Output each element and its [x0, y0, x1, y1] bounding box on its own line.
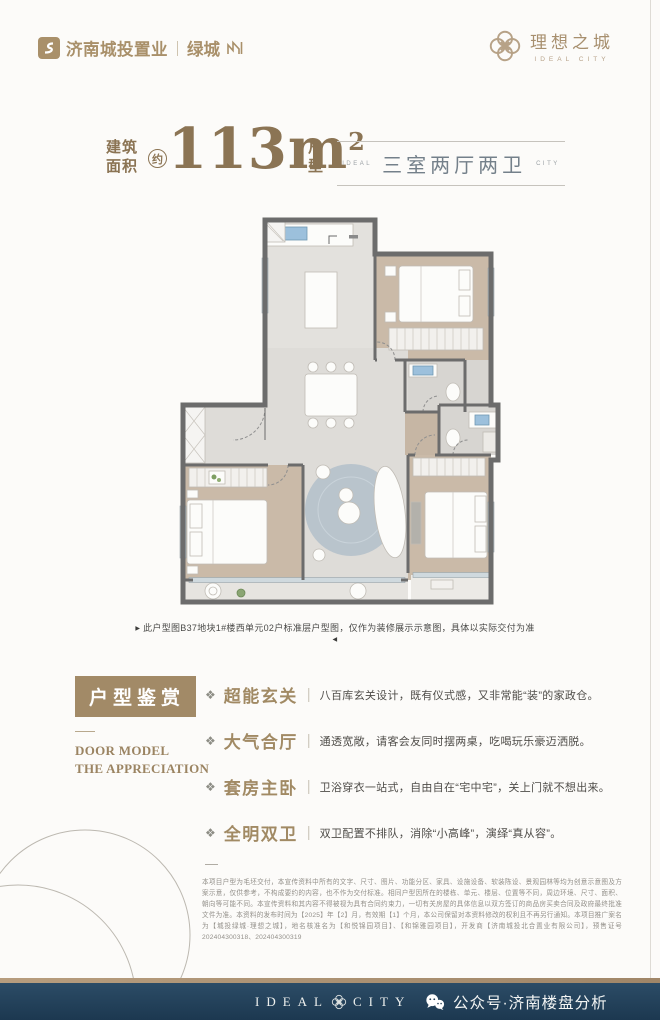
brand-name: 理想之城 [530, 28, 614, 53]
feature-row-entry: ❖ 超能玄关 | 八百库玄关设计，既有仪式感，又非常能“装”的家政仓。 [205, 682, 610, 707]
layout-box-left-word: IDEAL [342, 161, 372, 167]
approx-badge: 约 [148, 149, 167, 168]
developer-logo-icon [38, 37, 60, 59]
footer-brand-right: CITY [353, 994, 411, 1010]
feature-row-master: ❖ 套房主卧 | 卫浴穿衣一站式，自由自在“宅中宅”，关上门就不想出来。 [205, 774, 610, 799]
disclaimer-text: 本项目户型为毛坯交付，本宣传资料中所有的文字、尺寸、图片、功能分区、家具、设施设… [202, 877, 622, 943]
wechat-account-label: 公众号·济南楼盘分析 [453, 991, 608, 1013]
developer-name: 济南城投置业 [66, 36, 168, 60]
footer-brand: IDEAL CITY [255, 983, 411, 1020]
plan-note: ▶ 此户型图B37地块1#楼西单元02户标准层户型图，仅作为装修展示示意图，具体… [135, 621, 535, 644]
section-dash [75, 731, 95, 732]
section-subheading: DOOR MODEL THE APPRECIATION [75, 742, 209, 778]
layout-type-box: IDEAL 三室两厅两卫 CITY [337, 141, 565, 186]
layout-type-text: 三室两厅两卫 [382, 149, 526, 178]
diamond-icon: ❖ [205, 734, 216, 748]
quatrefoil-icon [331, 994, 347, 1010]
brand-name-en: IDEAL CITY [530, 56, 614, 63]
feature-row-hall: ❖ 大气合厅 | 通透宽敞，请客会友同时摆两桌，吃喝玩乐豪迈洒脱。 [205, 728, 610, 753]
footer-brand-left: IDEAL [255, 994, 329, 1010]
logo-divider [177, 41, 178, 56]
note-right-arrow: ◀ [333, 637, 338, 643]
feature-row-baths: ❖ 全明双卫 | 双卫配置不排队，消除“小高峰”，演绎“真从容”。 [205, 820, 610, 845]
features-section-header: 户型鉴赏 DOOR MODEL THE APPRECIATION [75, 676, 209, 778]
footer-bar: IDEAL CITY 公众号·济南楼盘分析 [0, 983, 660, 1020]
page-edge-line [650, 0, 651, 982]
note-left-arrow: ▶ [135, 626, 140, 632]
area-label: 建筑 面积 [106, 139, 138, 177]
partner-name: 绿城 [187, 36, 220, 60]
layout-box-right-word: CITY [536, 161, 560, 167]
diamond-icon: ❖ [205, 780, 216, 794]
footer-wechat: 公众号·济南楼盘分析 [424, 983, 608, 1020]
developer-logo: 济南城投置业 绿城 [38, 36, 244, 60]
section-heading: 户型鉴赏 [75, 676, 196, 717]
note-text: 此户型图B37地块1#楼西单元02户标准层户型图，仅作为装修展示示意图，具体以实… [143, 623, 535, 633]
decorative-circles [0, 815, 230, 982]
poster-page: 济南城投置业 绿城 理想之城 IDEAL CITY 建筑 面积 约 113m2 … [0, 0, 660, 1020]
unit-type-label: 户 型 [308, 139, 324, 177]
diamond-icon: ❖ [205, 688, 216, 702]
brand-logo: 理想之城 IDEAL CITY [488, 28, 614, 63]
wechat-icon [424, 992, 446, 1012]
greentown-icon [225, 39, 244, 57]
quatrefoil-icon [488, 29, 522, 63]
feature-list: ❖ 超能玄关 | 八百库玄关设计，既有仪式感，又非常能“装”的家政仓。 ❖ 大气… [205, 682, 610, 845]
floor-plan [153, 210, 508, 605]
